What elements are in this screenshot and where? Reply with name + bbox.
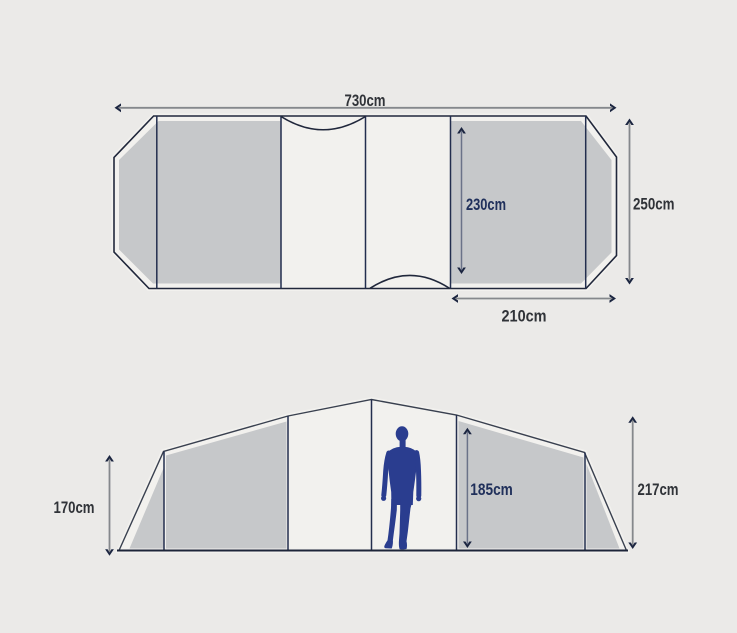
svg-text:217cm: 217cm (638, 481, 679, 499)
svg-text:210cm: 210cm (502, 308, 547, 326)
svg-text:185cm: 185cm (470, 481, 513, 499)
svg-text:250cm: 250cm (633, 196, 675, 214)
svg-text:230cm: 230cm (466, 196, 506, 214)
svg-text:170cm: 170cm (54, 499, 95, 517)
svg-text:730cm: 730cm (345, 92, 386, 110)
